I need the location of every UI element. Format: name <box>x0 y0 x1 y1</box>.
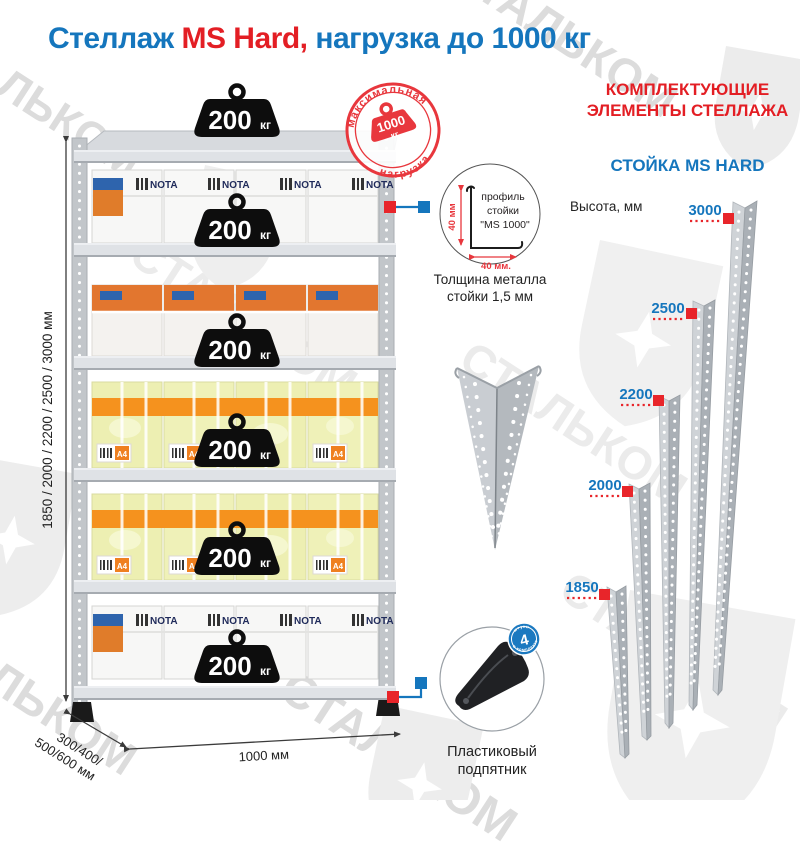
box-size-label: A4 <box>333 450 344 459</box>
profile-post-photo <box>455 366 540 550</box>
callout-post-marker <box>384 201 430 213</box>
thickness-label: Толщина металла <box>434 272 547 287</box>
dimension-width: 1000 мм <box>130 734 400 764</box>
post-height-label: 2200 <box>619 386 652 403</box>
components-header-line1: КОМПЛЕКТУЮЩИЕ <box>575 79 800 100</box>
weight-unit: кг <box>260 556 271 570</box>
box-brand-label: NOTA <box>150 180 178 191</box>
rack-foot-left <box>70 702 94 722</box>
component-posts: 3000 2500 2200 <box>565 201 757 758</box>
profile-label: стойки <box>487 205 519 217</box>
weight-200kg-icon: 200 кг <box>194 86 279 138</box>
weight-value: 200 <box>208 435 251 465</box>
components-header-line2: ЭЛЕМЕНТЫ СТЕЛЛАЖА <box>575 100 800 121</box>
rack-illustration: NOTA NOTA NOTA NOTA <box>32 72 452 784</box>
title-part-2: MS Hard, <box>181 22 307 55</box>
post-height-label: 1850 <box>565 579 598 596</box>
dimension-height: 1850 / 2000 / 2200 / 2500 / 3000 мм <box>40 142 66 701</box>
title-part-3: нагрузка до 1000 кг <box>307 22 590 55</box>
width-dimension-label: 1000 мм <box>238 747 289 765</box>
box-brand-label: NOTA <box>222 180 250 191</box>
weight-unit: кг <box>260 228 271 242</box>
weight-unit: кг <box>260 348 271 362</box>
profile-detail: 40 мм 40 мм. профиль стойки "MS 1000" То… <box>434 164 547 778</box>
post-1850: 1850 <box>565 579 629 758</box>
weight-value: 200 <box>208 215 251 245</box>
post-height-label: 2500 <box>651 300 684 317</box>
title-part-1: Стеллаж <box>48 22 181 55</box>
box-size-label: A4 <box>117 450 128 459</box>
post-height-label: 2000 <box>588 477 621 494</box>
post-height-label: 3000 <box>688 202 721 219</box>
components-header: КОМПЛЕКТУЮЩИЕ ЭЛЕМЕНТЫ СТЕЛЛАЖА <box>575 79 800 121</box>
weight-unit: кг <box>260 664 271 678</box>
box-brand-label: NOTA <box>294 180 322 191</box>
weight-value: 200 <box>208 335 251 365</box>
thickness-label: стойки 1,5 мм <box>447 289 533 304</box>
height-caption: Высота, мм <box>570 199 642 214</box>
height-dimension-label: 1850 / 2000 / 2200 / 2500 / 3000 мм <box>40 311 55 528</box>
profile-dim-horizontal: 40 мм. <box>481 261 511 272</box>
profile-dim-vertical: 40 мм <box>447 203 458 230</box>
weight-unit: кг <box>260 118 271 132</box>
foot-caption: подпятник <box>458 762 528 778</box>
weight-unit: кг <box>260 448 271 462</box>
plastic-foot-detail: 4 штуки в комплекте Пластиковый подпятни… <box>440 620 544 778</box>
weight-value: 200 <box>208 543 251 573</box>
weight-value: 200 <box>208 105 251 135</box>
components-subheader: СТОЙКА MS HARD <box>575 156 800 176</box>
profile-label: "MS 1000" <box>480 219 530 231</box>
foot-caption: Пластиковый <box>447 744 537 760</box>
weight-value: 200 <box>208 651 251 681</box>
page-title: Стеллаж MS Hard, нагрузка до 1000 кг <box>48 22 591 56</box>
box-brand-label: NOTA <box>366 180 394 191</box>
rack-post-left <box>72 138 87 710</box>
profile-label: профиль <box>481 191 525 203</box>
dimension-depth: 300/400/ 500/600 мм <box>32 714 126 784</box>
